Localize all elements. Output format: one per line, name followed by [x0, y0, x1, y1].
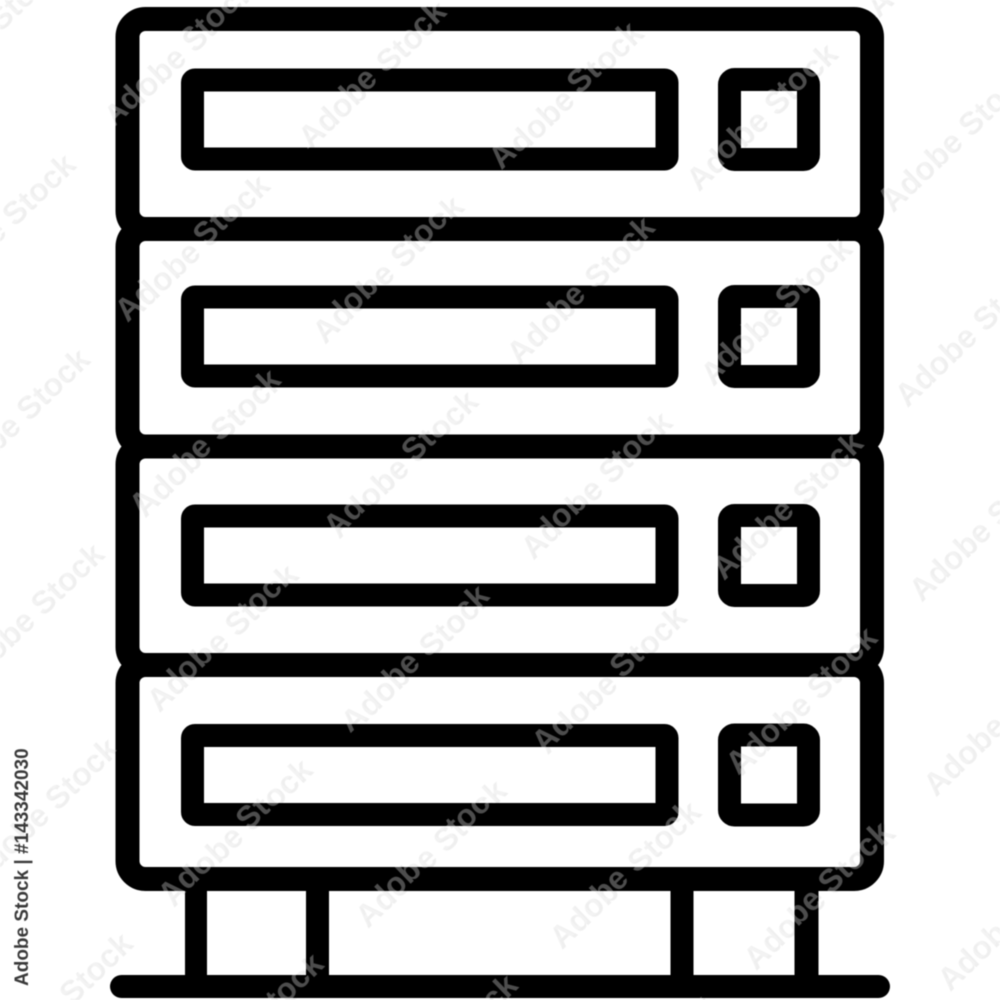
svg-text:Adobe Stock | #143342030: Adobe Stock | #143342030	[12, 748, 33, 986]
